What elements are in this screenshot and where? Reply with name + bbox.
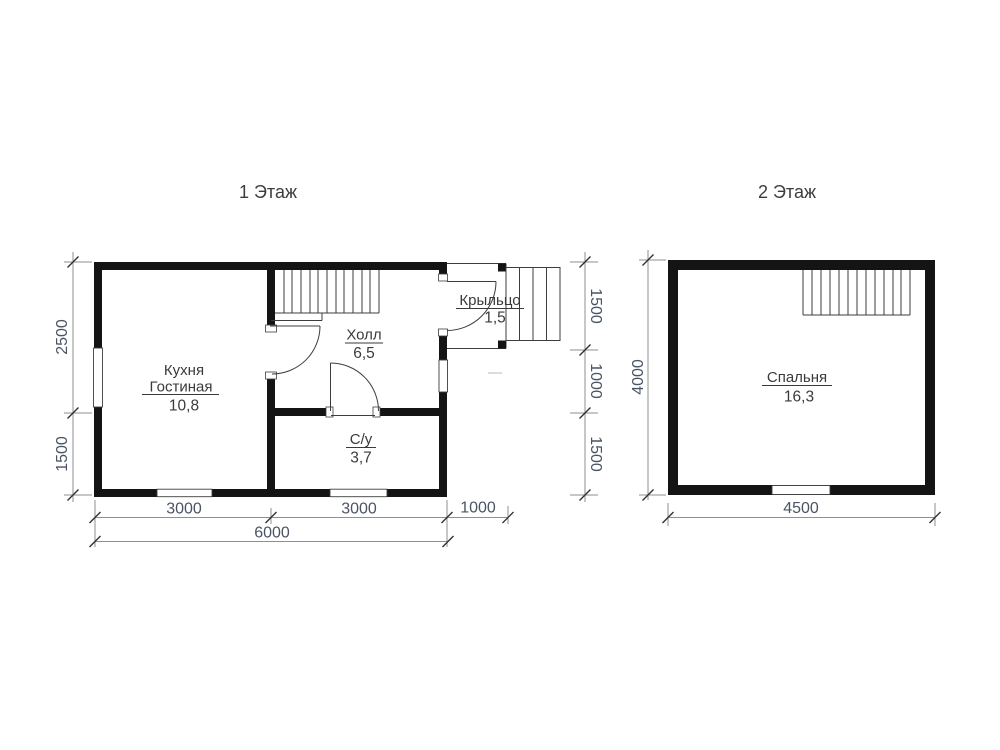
wc-name: С/у <box>350 431 373 448</box>
dim-1500-right-bot: 1500 <box>587 436 604 472</box>
porch-post <box>498 264 506 272</box>
door-jamb <box>439 274 448 281</box>
floor2-dims-left: 4000 <box>630 250 666 501</box>
dim-1500-left: 1500 <box>54 436 71 472</box>
label-porch: Крыльцо 1,5 <box>456 292 524 327</box>
porch-area: 1,5 <box>484 310 506 327</box>
door-jamb <box>266 372 277 379</box>
kitchen-area: 10,8 <box>169 398 199 415</box>
door-opening-hall-wc <box>331 408 375 416</box>
window-hall-right <box>439 360 448 392</box>
dim-6000: 6000 <box>254 525 290 542</box>
window-bedroom-bottom <box>772 486 830 495</box>
dim-1500-right-top: 1500 <box>587 288 604 324</box>
floor2-dims-bottom: 4500 <box>663 500 941 526</box>
dim-4500: 4500 <box>783 500 819 517</box>
window-kitchen-bottom <box>157 489 212 497</box>
bedroom-area: 16,3 <box>784 389 814 406</box>
door-opening-porch <box>439 281 447 329</box>
floor1-dims-right: 1500 1000 1500 <box>570 252 604 502</box>
floorplan-drawing: 1 Этаж <box>0 0 1000 750</box>
door-jamb <box>439 329 448 336</box>
label-wc: С/у 3,7 <box>346 431 376 467</box>
dim-3000-b: 3000 <box>341 501 377 518</box>
kitchen-name-line2: Гостиная <box>150 379 213 396</box>
window-wc-bottom <box>330 489 387 497</box>
bedroom-name: Спальня <box>767 369 827 386</box>
floor1-plan: 1 Этаж <box>54 182 604 547</box>
floor1-wall-kitchen-hall <box>267 270 275 489</box>
dim-4000: 4000 <box>630 359 647 395</box>
porch-name: Крыльцо <box>459 292 520 309</box>
kitchen-name-line1: Кухня <box>164 362 204 379</box>
hall-area: 6,5 <box>353 345 375 362</box>
dim-1000-right: 1000 <box>587 363 604 399</box>
dim-1000-b: 1000 <box>460 500 496 517</box>
dim-3000-a: 3000 <box>166 501 202 518</box>
wc-area: 3,7 <box>350 450 372 467</box>
floor1-dims-bottom: 3000 3000 1000 6000 <box>90 500 514 548</box>
door-opening-kitchen-hall <box>267 325 275 379</box>
floorplan-sheet: 1 Этаж <box>0 0 1000 750</box>
floor1-title: 1 Этаж <box>239 182 297 202</box>
floor1-dims-left: 2500 1500 <box>54 252 92 502</box>
hall-name: Холл <box>346 327 381 344</box>
floor2-plan: 2 Этаж Спальня 16,3 4000 <box>630 182 941 526</box>
porch-post <box>498 341 506 349</box>
window-kitchen-left <box>94 348 103 407</box>
dim-2500: 2500 <box>54 319 71 355</box>
floor2-title: 2 Этаж <box>758 182 816 202</box>
